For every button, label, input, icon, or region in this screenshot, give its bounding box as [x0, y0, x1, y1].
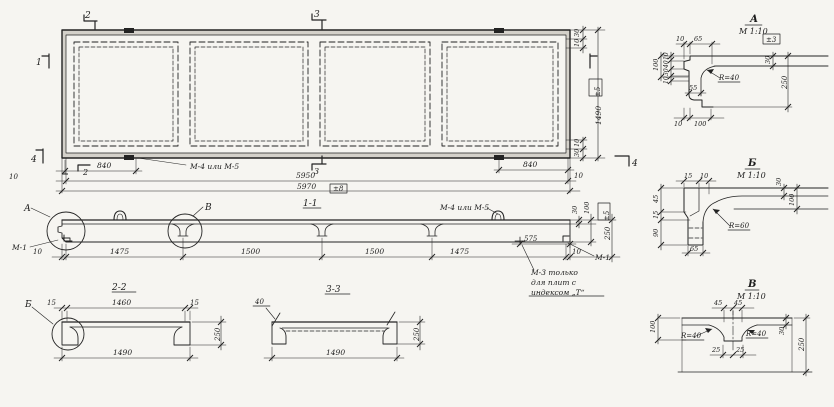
detail-v-dim-100: 100 — [649, 321, 657, 333]
dim-15-right-2-2: 15 — [190, 299, 199, 307]
detail-a-dim-30-flange: 30 — [764, 56, 772, 64]
detail-a-radius: R=40 — [718, 74, 740, 82]
section-3-3: 3-3 40 1490 250 — [253, 285, 425, 361]
detail-a-scale: М 1:10 — [738, 27, 768, 36]
dim-250-2-2: 250 — [214, 327, 222, 342]
anchor-note-1-1: М-4 или М-5 — [439, 203, 489, 212]
section-1-1-title: 1-1 — [303, 199, 318, 209]
detail-v-title: В — [747, 279, 756, 290]
dim-15-left-2-2: 15 — [47, 299, 56, 307]
cut-label-1-left: 1 — [36, 58, 42, 68]
dim-seg2: 1500 — [241, 247, 260, 256]
detail-circle-v — [168, 214, 202, 248]
detail-b-dim-100: 100 — [788, 194, 796, 206]
plan-dim-5970: 5970 — [297, 182, 316, 191]
detail-b-dim-30: 30 — [775, 178, 783, 186]
m3-note-line3: индексом „Т“ — [531, 288, 585, 297]
detail-v-dim-25-right: 25 — [735, 346, 744, 354]
cut-label-4-right: 4 — [631, 159, 638, 169]
cut-label-2-top: 2 — [84, 11, 91, 21]
dim-575: 575 — [524, 235, 538, 243]
detail-v-radius-right: R=40 — [745, 330, 767, 338]
detail-b-dim-15-left: 15 — [652, 211, 660, 219]
detail-b: Б М 1:10 15 10 45 15 90 30 100 R=60 65 — [652, 158, 828, 256]
detail-b-dim-90: 90 — [652, 229, 660, 237]
tol-1-1: ±5 — [603, 210, 611, 221]
detail-a-dim-10-top: 10 — [676, 35, 684, 43]
detail-b-dim-45: 45 — [652, 195, 660, 204]
detail-a-dim-40: 40 — [663, 60, 670, 69]
plan-dim-840-left: 840 — [97, 161, 112, 170]
drawing-linework: 2 3 1 4 2 3 4 840 840 М-4 или М-5 10 595… — [0, 0, 834, 407]
plan-dim-10-bottom: 10 — [573, 139, 581, 147]
dim-10-left-1-1: 10 — [33, 248, 42, 256]
detail-v: В М 1:10 45 45 100 30 250 25 25 R=40 R=4… — [649, 279, 812, 376]
detail-b-radius: R=60 — [728, 222, 750, 230]
plan-view: 2 3 1 4 2 3 4 840 840 М-4 или М-5 10 595… — [9, 10, 638, 194]
plan-dim-10-top: 10 — [573, 39, 581, 47]
detail-v-ref: В — [204, 203, 212, 213]
m3-note-line1: М-3 только — [530, 268, 578, 277]
detail-b-dim-10-top: 10 — [700, 172, 708, 180]
cut-label-2-bottom: 2 — [82, 168, 88, 177]
detail-b-dim-15-top: 15 — [684, 172, 692, 180]
section-1-1: 1-1 А В М-1 М-4 или М-5 10 1475 1500 150… — [11, 199, 620, 297]
dim-250-3-3: 250 — [413, 327, 421, 342]
section-3-3-title: 3-3 — [326, 285, 341, 295]
dim-100-1-1: 100 — [583, 202, 591, 214]
detail-v-dim-30: 30 — [778, 327, 786, 335]
detail-a: А М 1:10 10 65 ±3 30 R=40 100 10 40 30 1… — [652, 14, 828, 128]
plan-dim-10-left: 10 — [9, 173, 18, 181]
dim-1460: 1460 — [112, 298, 131, 307]
dim-1490-2-2: 1490 — [113, 348, 132, 357]
dim-10-right-1-1: 10 — [572, 248, 581, 256]
plan-tol-5970: ±8 — [333, 185, 344, 193]
plan-tol-1490: ±5 — [594, 86, 602, 97]
m1-left-label: М-1 — [11, 243, 27, 252]
plan-dim-5950: 5950 — [296, 171, 315, 180]
detail-a-dim-100-left: 100 — [652, 59, 660, 71]
plan-anchor-note: М-4 или М-5 — [189, 162, 239, 171]
cut-flags — [36, 14, 629, 171]
dim-seg1: 1475 — [110, 247, 129, 256]
detail-a-dim-30-left: 30 — [663, 68, 670, 76]
detail-a-dim-10-b: 10 — [663, 76, 670, 84]
detail-b-scale: М 1:10 — [736, 171, 766, 180]
dim-40-3-3: 40 — [254, 298, 264, 306]
detail-v-dim-45-left: 45 — [713, 299, 722, 307]
cut-label-4-left: 4 — [30, 155, 37, 165]
dim-seg4: 1475 — [450, 247, 469, 256]
technical-drawing-sheet: 2 3 1 4 2 3 4 840 840 М-4 или М-5 10 595… — [0, 0, 834, 407]
detail-a-ref: А — [23, 204, 31, 214]
section-2-2-title: 2-2 — [111, 283, 127, 293]
detail-a-tol: ±3 — [766, 36, 777, 44]
detail-a-dim-55: 55 — [689, 84, 697, 92]
detail-a-dim-100-bottom: 100 — [694, 120, 706, 128]
detail-b-ref: Б — [24, 300, 32, 310]
dim-1490-3-3: 1490 — [326, 348, 345, 357]
detail-b-dim-65: 65 — [690, 245, 698, 253]
plan-dim-30-bottom: 30 — [573, 149, 581, 157]
m1-right-label: М-1 — [594, 253, 610, 262]
detail-v-dim-45-right: 45 — [733, 299, 742, 307]
plan-dim-1490: 1490 — [594, 106, 603, 125]
plan-dim-10-right: 10 — [574, 172, 583, 180]
dim-250-1-1: 250 — [604, 226, 612, 241]
dim-seg3: 1500 — [365, 247, 384, 256]
detail-a-dim-10-a: 10 — [663, 52, 670, 60]
detail-a-dim-65: 65 — [694, 35, 702, 43]
detail-v-radius-left: R=40 — [680, 332, 702, 340]
detail-v-dim-250: 250 — [798, 337, 806, 352]
detail-v-dim-25-left: 25 — [711, 346, 720, 354]
plan-dim-840-right: 840 — [523, 160, 538, 169]
cut-label-3-top: 3 — [314, 10, 320, 20]
detail-b-title: Б — [747, 158, 757, 169]
detail-a-title: А — [749, 14, 758, 25]
plan-panel-dashed-outlines — [74, 42, 558, 146]
detail-a-dim-250: 250 — [781, 75, 789, 90]
detail-a-dim-10-bottom: 10 — [674, 120, 682, 128]
section-2-2: 2-2 Б 15 1460 15 1490 250 — [24, 283, 226, 361]
plan-dim-30-top: 30 — [573, 29, 581, 37]
dim-30-1-1: 30 — [571, 206, 579, 214]
m3-note-line2: для плит с — [531, 278, 577, 287]
